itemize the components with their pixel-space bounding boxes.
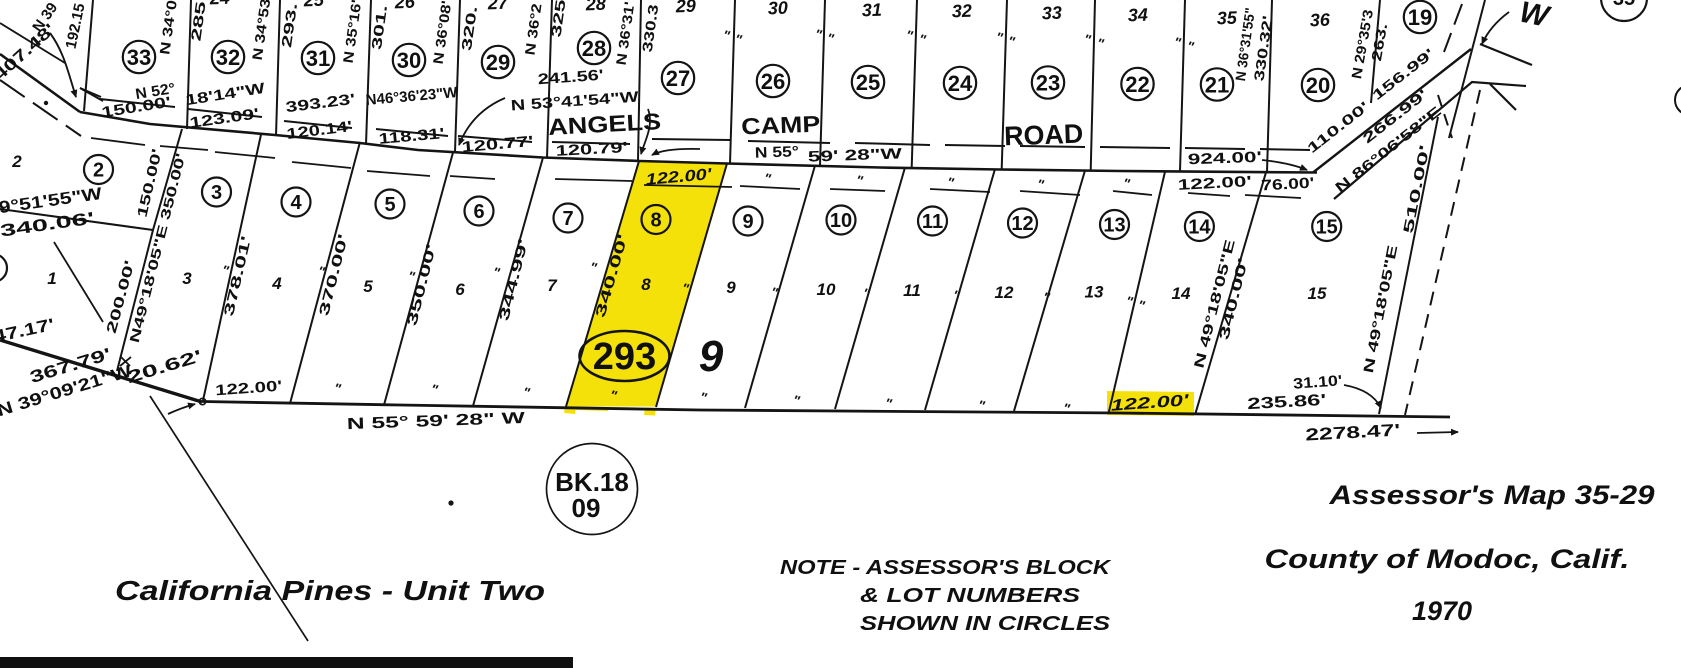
svg-text:31: 31 [306,46,330,71]
svg-text:2: 2 [93,160,104,182]
svg-text:5: 5 [384,194,395,216]
svg-text:31: 31 [861,0,882,20]
svg-text:County of Modoc, Calif.: County of Modoc, Calif. [1265,544,1630,574]
svg-text:1970: 1970 [1412,596,1472,626]
svg-text:4: 4 [290,192,302,214]
svg-text:1: 1 [47,269,56,288]
svg-text:30: 30 [767,0,788,18]
svg-text:7: 7 [547,276,558,295]
svg-text:12: 12 [995,283,1014,302]
svg-text:28: 28 [582,36,606,61]
svg-text:59' 28"W: 59' 28"W [808,145,904,165]
svg-text:15: 15 [1308,284,1327,303]
svg-text:5: 5 [363,277,373,296]
svg-text:26: 26 [393,0,416,12]
svg-text:Assessor's Map 35-29: Assessor's Map 35-29 [1328,480,1654,510]
svg-text:ROAD: ROAD [1004,119,1084,152]
svg-text:6: 6 [455,280,465,299]
svg-text:36: 36 [1309,10,1331,31]
svg-text:15: 15 [1316,217,1338,239]
svg-text:4: 4 [271,274,282,293]
svg-text:NOTE - ASSESSOR'S BLOCK: NOTE - ASSESSOR'S BLOCK [780,557,1112,579]
svg-text:25: 25 [302,0,325,10]
svg-text:32: 32 [951,1,972,22]
svg-text:30: 30 [397,48,421,73]
svg-text:3: 3 [211,182,222,204]
svg-text:34: 34 [1127,5,1148,26]
svg-text:21: 21 [1205,72,1229,97]
svg-text:14: 14 [1188,217,1211,239]
svg-text:29: 29 [486,50,510,75]
svg-text:10: 10 [817,280,836,299]
svg-text:23: 23 [1036,70,1060,95]
svg-text:11: 11 [922,211,943,233]
svg-text:33: 33 [127,45,151,70]
svg-text:35: 35 [1613,0,1635,10]
svg-text:76.00': 76.00' [1261,175,1315,195]
svg-text:9: 9 [726,278,736,297]
svg-text:7: 7 [562,208,573,230]
svg-text:19: 19 [1408,5,1432,30]
svg-text:13: 13 [1085,283,1104,302]
svg-text:29: 29 [674,0,696,16]
svg-text:25: 25 [856,70,880,95]
svg-text:28: 28 [584,0,606,14]
svg-text:2: 2 [11,152,22,171]
svg-text:33: 33 [1041,3,1062,24]
svg-text:27: 27 [666,66,690,91]
svg-text:8: 8 [641,275,651,294]
svg-text:24: 24 [208,0,230,8]
svg-text:293: 293 [593,336,656,378]
svg-text:& LOT NUMBERS: & LOT NUMBERS [860,585,1081,607]
svg-text:35: 35 [1216,8,1238,29]
svg-text:8: 8 [650,210,661,232]
svg-text:10: 10 [830,210,852,232]
svg-text:California Pines - Unit Two: California Pines - Unit Two [115,575,545,606]
svg-text:31.10': 31.10' [1293,372,1343,392]
svg-text:3: 3 [182,269,192,288]
svg-text:924.00': 924.00' [1188,149,1263,169]
svg-text:27: 27 [486,0,509,13]
svg-text:11: 11 [903,281,921,300]
svg-text:SHOWN IN CIRCLES: SHOWN IN CIRCLES [860,613,1111,635]
svg-text:12: 12 [1011,213,1033,235]
svg-text:24: 24 [948,71,973,96]
svg-text:N 55°: N 55° [755,143,800,162]
svg-text:20: 20 [1306,73,1330,98]
svg-text:26: 26 [761,69,785,94]
svg-text:6: 6 [473,201,484,223]
svg-text:09: 09 [572,493,601,523]
svg-text:14: 14 [1172,284,1191,303]
svg-text:13: 13 [1103,215,1125,237]
svg-text:32: 32 [216,45,240,70]
svg-text:9: 9 [742,211,753,233]
svg-text:22: 22 [1125,72,1149,97]
svg-text:9: 9 [699,332,724,381]
svg-text:CAMP: CAMP [741,111,821,140]
